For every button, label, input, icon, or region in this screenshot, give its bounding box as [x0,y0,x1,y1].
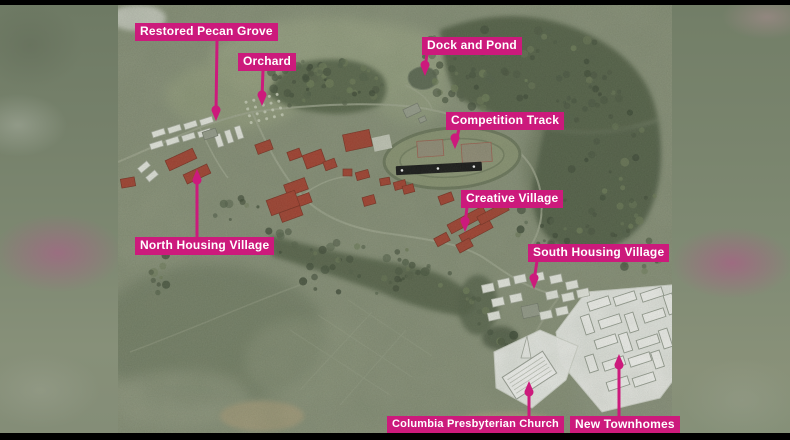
label-new-townhomes: New Townhomes [570,416,680,434]
label-south-housing-village: South Housing Village [528,244,669,262]
label-restored-pecan-grove: Restored Pecan Grove [135,23,278,41]
aerial-photo [118,5,672,433]
label-dock-and-pond: Dock and Pond [422,37,522,55]
blurred-backdrop-right [672,5,790,433]
letterbox-top [0,0,790,5]
label-orchard: Orchard [238,53,296,71]
label-creative-village: Creative Village [461,190,563,208]
label-north-housing-village: North Housing Village [135,237,274,255]
label-competition-track: Competition Track [446,112,564,130]
label-columbia-presbyterian-church: Columbia Presbyterian Church [387,416,564,434]
screenshot-frame: Restored Pecan Grove Orchard Dock and Po… [0,0,790,440]
blurred-backdrop-left [0,5,118,433]
letterbox-bottom [0,433,790,440]
aerial-map [118,5,672,433]
